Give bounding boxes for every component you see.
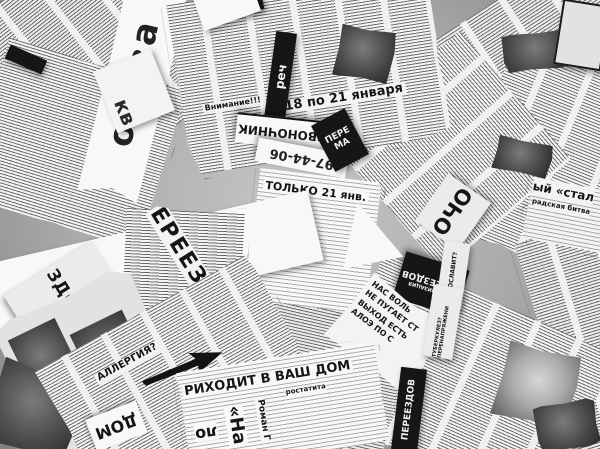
roman-text: Роман Г: [255, 399, 271, 441]
lo-text: ло: [194, 423, 219, 443]
prostatita-text: ростатита: [285, 383, 326, 397]
comes-home-headline: РИХОДИТ В ВАШ ДОМ: [181, 359, 353, 399]
pereezdov-text: ПЕРЕЕЗДОВ: [400, 379, 417, 441]
dom-text: ДОМ: [93, 410, 140, 441]
ocho-text: ОЧО: [429, 184, 477, 240]
na-quote-text: «На: [223, 404, 248, 445]
hat-photo: [332, 23, 398, 84]
rech-text: реч: [272, 63, 289, 90]
dom-scrap: ДОМ: [85, 401, 148, 449]
tuberkulez-text: ТУБЕРКУЛЕЗ? ПЕРЕНАПРЯЖЕНИ: [432, 286, 454, 359]
attention-headline: Внимание!!!: [202, 96, 263, 114]
newspaper-collage-photo: осква кв Внимание!!! с 18 по 21 января р…: [0, 0, 600, 449]
kv-fragment-text: кв: [110, 96, 139, 128]
